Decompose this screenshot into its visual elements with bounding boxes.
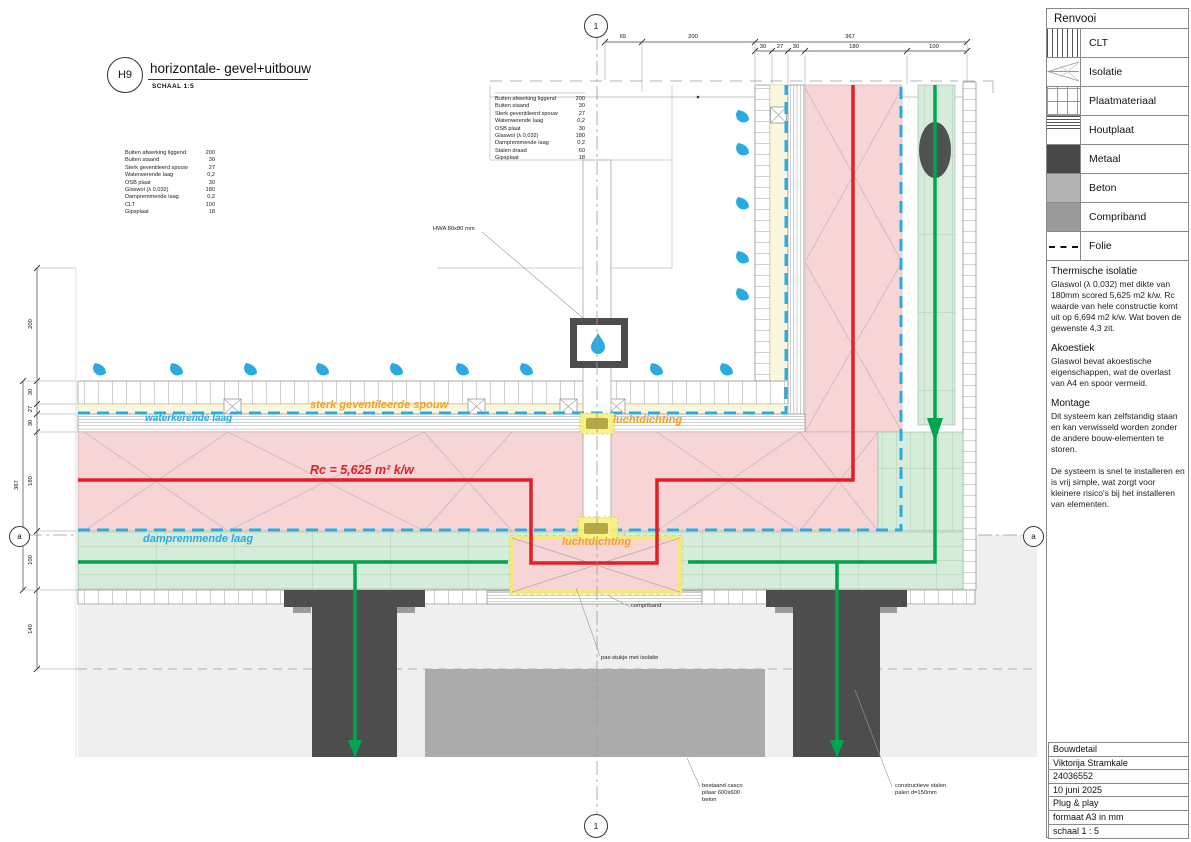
concrete-swatch-icon [1047,174,1080,202]
outer-leaf-column [963,82,976,590]
annotation-airtight-top: luchtdichting [613,414,682,426]
annotation-water-layer: waterkerende laag [145,413,232,424]
schedule-row: Sterk geventileerd spouw27 [125,165,215,172]
dim-label: 180 [28,476,34,486]
legend-row: Isolatie [1047,58,1188,87]
note-body: Glaswol bevat akoestische eigenschappen,… [1051,356,1185,389]
detail-code: H9 [118,69,132,81]
legend-label: Folie [1081,232,1112,260]
clt-corner [878,432,963,531]
legend-row: CLT [1047,29,1188,58]
legend-row: Plaatmateriaal [1047,87,1188,116]
legend-row: Folie [1047,232,1188,261]
annotation-ventilated-cavity: sterk geventileerde spouw [310,399,448,411]
dim-label: 30 [28,420,34,426]
dim-label: 180 [849,44,859,50]
board-grid-icon [1047,87,1080,115]
annotation-compriband: compriband [631,603,661,610]
dim-label: 27 [777,44,783,50]
insulation-triangles-icon [1047,58,1080,85]
grid-marker-left: a [9,526,30,547]
legend-label: Metaal [1081,145,1121,173]
schedule-row: Buiten afwerking liggend200 [495,96,585,103]
water-drop-icon [170,363,183,375]
water-drop-icon [736,197,749,209]
water-drop-icon [244,363,257,375]
drawing-scale: SCHAAL 1:5 [152,83,194,90]
detail-code-circle: H9 [107,57,143,93]
dim-label: 200 [28,319,34,329]
foil-dashed-icon [1049,246,1078,248]
legend-label: CLT [1081,29,1108,57]
title-block-row: Viktorija Stramkale [1049,757,1188,771]
schedule-row: Glaswol (λ 0,032)180 [125,187,215,194]
note-heading: Thermische isolatie [1051,266,1185,277]
annotation-rc-value: Rc = 5,625 m² k/w [310,463,414,477]
metal-swatch-icon [1047,145,1080,173]
dim-label: 367 [14,480,20,490]
schedule-row: Stalen draad60 [495,148,585,155]
waterkerende-laag-line [78,85,786,413]
legend-label: Compriband [1081,203,1146,231]
schedule-row: Sterk geventileerd spouw27 [495,111,585,118]
water-drop-icon [456,363,469,375]
schedule-row: Gipsplaat18 [125,209,215,216]
grid-marker-right: a [1023,526,1044,547]
note-body: Glaswol (λ 0,032) met dikte van 180mm sc… [1051,279,1185,334]
dim-label: 30 [793,44,799,50]
title-block-row: 24036552 [1049,770,1188,784]
concrete-pillar [425,669,765,757]
water-drop-icon [720,363,733,375]
schedule-row: OSB plaat30 [495,126,585,133]
annotation-steel-piles: constructieve stalen palen d=150mm [895,783,946,797]
cavity-batten [771,107,787,123]
legend-label: Plaatmateriaal [1081,87,1156,115]
water-drop-icon [520,363,533,375]
dim-label: 27 [28,406,34,412]
legend-row: Beton [1047,174,1188,203]
water-drop-icon [736,288,749,300]
title-block-row: Bouwdetail [1049,743,1188,757]
schedule-row: Dampremmende laag0,2 [495,140,585,147]
dim-label: 140 [28,624,34,634]
water-drop-icon [390,363,403,375]
annotation-airtight-bottom: luchtdichting [562,536,631,548]
legend-title: Renvooi [1047,9,1188,29]
water-drop-icon [316,363,329,375]
grid-marker-top: 1 [584,14,608,38]
note-heading: Akoestiek [1051,343,1185,354]
annotation-vapour-layer: dampremmende laag [143,533,253,545]
dim-label: 100 [28,555,34,565]
notes-column: Thermische isolatie Glaswol (λ 0,032) me… [1051,266,1185,510]
title-block-row: Plug & play [1049,797,1188,811]
schedule-row: Waterwerende laag0,2 [125,172,215,179]
water-drop-icon [736,110,749,122]
water-drop-icon [93,363,106,375]
schedule-row: CLT100 [125,202,215,209]
construction-detail-sheet: H9 horizontale- gevel+uitbouw SCHAAL 1:5… [0,0,1191,842]
title-underline [148,79,308,80]
dim-label: 65 [620,34,626,40]
schedule-row: OSB plaat30 [125,180,215,187]
dim-label: 200 [688,34,698,40]
annotation-hwa: HWA 80x80 mm [433,226,475,233]
dim-label: 367 [845,34,855,40]
dim-label: 30 [760,44,766,50]
schedule-row: Buiten staand30 [495,103,585,110]
water-drop-icon [650,363,663,375]
title-block-row: formaat A3 in mm [1049,811,1188,825]
water-drop-icon [736,251,749,263]
schedule-row: Glaswol (λ 0,032)180 [495,133,585,140]
legend-row: Houtplaat [1047,116,1188,145]
drawing-title: horizontale- gevel+uitbouw [150,61,311,76]
schedule-row: Gipsplaat18 [495,155,585,162]
title-block-row: schaal 1 : 5 [1049,825,1188,839]
title-block-row: 10 juni 2025 [1049,784,1188,798]
note-body: Dit systeem kan zelfstandig staan en kan… [1051,411,1185,510]
note-heading: Montage [1051,398,1185,409]
title-block: Bouwdetail Viktorija Stramkale 24036552 … [1048,742,1189,839]
schedule-row: Waterwerende laag0,2 [495,118,585,125]
schedule-row: Buiten afwerking liggend200 [125,150,215,157]
legend-label: Houtplaat [1081,116,1134,144]
compriband-swatch-icon [1047,203,1080,231]
clt-hatch-icon [1047,29,1080,57]
legend-label: Beton [1081,174,1116,202]
wood-lines-icon [1047,116,1080,129]
legend-row: Metaal [1047,145,1188,174]
grid-marker-bottom: 1 [584,814,608,838]
annotation-pas-stukje: pas-stukje met isolatie [601,655,658,662]
schedule-row: Buiten staand30 [125,157,215,164]
dim-label: 100 [929,44,939,50]
water-drop-icon [736,143,749,155]
legend-row: Compriband [1047,203,1188,232]
dim-label: 30 [28,389,34,395]
material-schedule-joint: Buiten afwerking liggend200 Buiten staan… [495,96,585,163]
material-schedule-wall: Buiten afwerking liggend200 Buiten staan… [125,150,215,217]
legend-label: Isolatie [1081,58,1122,86]
annotation-concrete-pillar: bestaand casco pilaar 600x600 beton [702,783,743,805]
schedule-row: Dampremmende laag0,2 [125,194,215,201]
